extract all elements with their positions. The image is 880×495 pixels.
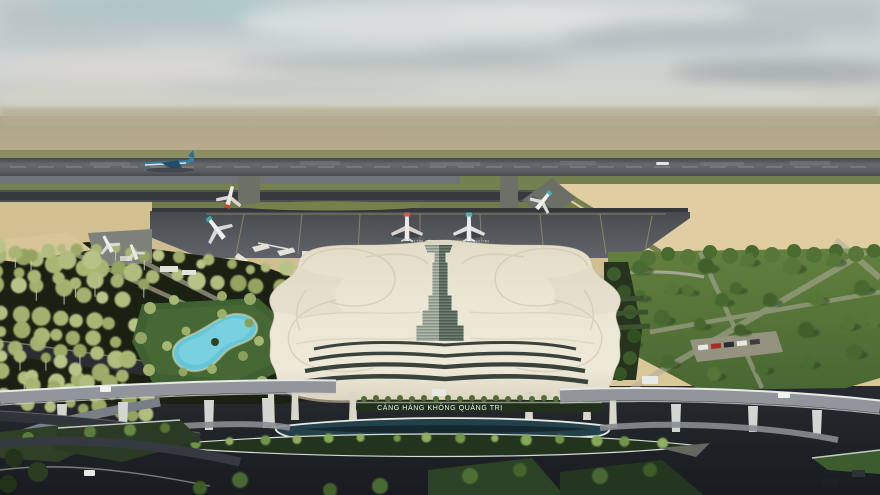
svg-text:CẢNG HÀNG KHÔNG QUẢNG TRỊ: CẢNG HÀNG KHÔNG QUẢNG TRỊ <box>377 403 503 412</box>
